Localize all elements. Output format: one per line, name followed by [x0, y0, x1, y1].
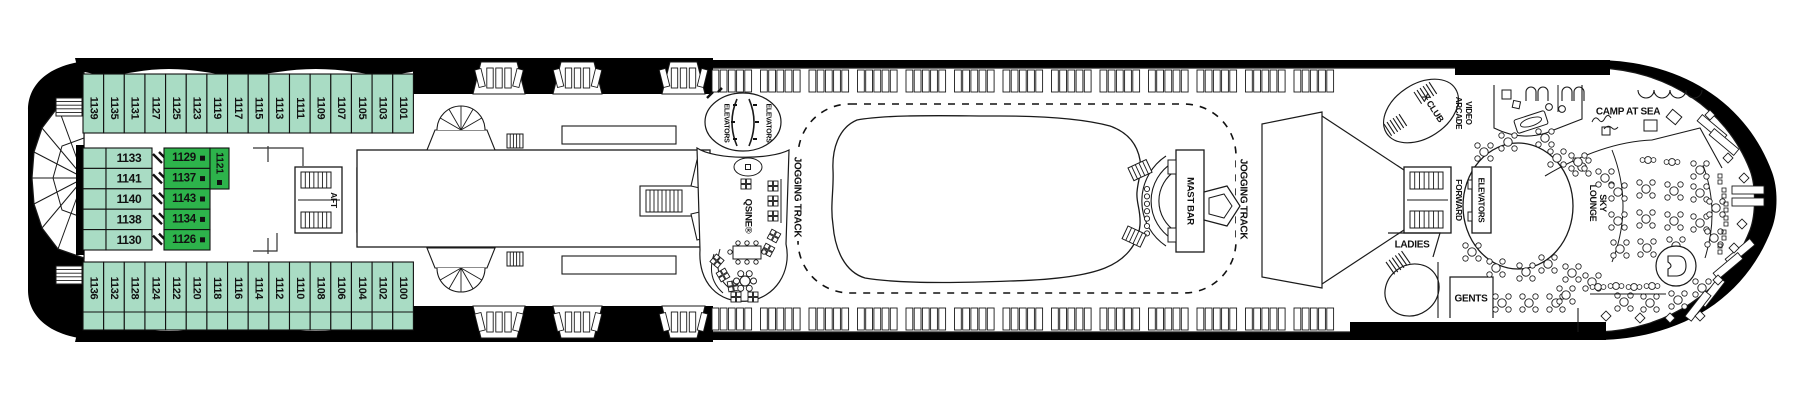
- lounger-icon: [785, 70, 792, 92]
- lounger-icon: [866, 70, 873, 92]
- cabin-number-1138: 1138: [117, 212, 142, 226]
- balcony-1133[interactable]: [83, 148, 106, 168]
- lounger-icon: [914, 308, 921, 330]
- label-elevators-mid-right: ELEVATORS: [765, 104, 772, 144]
- balcony-1130[interactable]: [83, 230, 106, 250]
- lounger-icon: [1149, 70, 1156, 92]
- lounger-icon: [1319, 308, 1326, 330]
- lounger-icon: [939, 70, 946, 92]
- lounger-icon: [574, 312, 580, 332]
- lounger-icon: [496, 68, 502, 88]
- lounger-group: [1052, 308, 1092, 330]
- lounger-icon: [1019, 308, 1026, 330]
- cabin-number-1133: 1133: [117, 151, 142, 165]
- gangway-stairs-icon: [56, 266, 82, 284]
- lounger-group: [1149, 308, 1189, 330]
- cabin-number-1127: 1127: [149, 97, 161, 120]
- cabin-number-1121: 1121: [214, 152, 226, 174]
- label-jogging-track-fwd: JOGGING TRACK: [1238, 159, 1249, 241]
- lounger-icon: [1262, 70, 1269, 92]
- chair-icon: [736, 260, 740, 264]
- lounger-icon: [1197, 70, 1204, 92]
- lounger-icon: [1205, 308, 1212, 330]
- cabin-number-1143: 1143: [172, 193, 196, 205]
- lounger-group: [1100, 70, 1140, 92]
- cabin-marker: [200, 237, 205, 242]
- lounger-icon: [979, 308, 986, 330]
- lounger-icon: [1205, 70, 1212, 92]
- cabin-number-1134: 1134: [172, 213, 197, 225]
- cabin-number-1132: 1132: [108, 277, 120, 300]
- lounger-icon: [955, 308, 962, 330]
- lounger-icon: [1310, 70, 1317, 92]
- lounger-icon: [1181, 308, 1188, 330]
- elevator-door: [1468, 212, 1472, 221]
- lounger-icon: [817, 70, 824, 92]
- lounger-group: [1100, 308, 1140, 330]
- chair-icon: [736, 241, 740, 245]
- label-mast-bar: MAST BAR: [1185, 177, 1196, 225]
- lounger-group: [712, 308, 752, 330]
- lounger-icon: [1294, 70, 1301, 92]
- lounger-icon: [874, 308, 881, 330]
- bar-stool-icon: [1144, 216, 1149, 221]
- lounger-icon: [858, 308, 865, 330]
- lounger-icon: [769, 308, 776, 330]
- lounger-group: [1246, 308, 1286, 330]
- lounger-icon: [809, 308, 816, 330]
- table-icon: [1664, 159, 1680, 166]
- lounger-icon: [487, 68, 493, 88]
- hull-wave-top: [75, 58, 420, 75]
- lounger-icon: [834, 70, 841, 92]
- lounger-icon: [1116, 308, 1123, 330]
- label-ladies: LADIES: [1395, 240, 1431, 251]
- label-forward: FORWARD: [1454, 179, 1464, 221]
- lounger-icon: [761, 70, 768, 92]
- lounger-group: [1003, 308, 1043, 330]
- stairs-icon: [507, 134, 523, 148]
- lounger-icon: [496, 312, 502, 332]
- forward-casing: [1262, 112, 1322, 288]
- cabin-number-1135: 1135: [108, 97, 120, 120]
- lounger-icon: [680, 68, 686, 88]
- lounger-icon: [1262, 308, 1269, 330]
- lounger-icon: [842, 70, 849, 92]
- table-icon: [1626, 284, 1642, 291]
- cabin-number-1107: 1107: [335, 97, 347, 120]
- cabin-number-1117: 1117: [232, 97, 244, 119]
- lounger-icon: [689, 312, 695, 332]
- lounger-icon: [906, 70, 913, 92]
- bar-stool-icon: [1144, 223, 1149, 228]
- lounger-icon: [777, 308, 784, 330]
- cabin-number-1140: 1140: [117, 192, 142, 206]
- lounger-icon: [1165, 308, 1172, 330]
- bar-stool-icon: [1144, 186, 1149, 191]
- stairs-icon: [646, 190, 682, 212]
- lounger-icon: [890, 308, 897, 330]
- lounger-group: [858, 70, 898, 92]
- pool-opening: [832, 116, 1141, 283]
- lounger-icon: [1003, 308, 1010, 330]
- lounger-icon: [1011, 308, 1018, 330]
- lounger-icon: [565, 312, 571, 332]
- balcony-1138[interactable]: [83, 209, 106, 229]
- deck-plan-page: 1139113511311127112511231119111711151113…: [0, 0, 1800, 400]
- lounger-icon: [922, 308, 929, 330]
- label-camp-at-sea: CAMP AT SEA: [1596, 107, 1660, 118]
- host-podium: [734, 158, 762, 176]
- lounger-icon: [1036, 308, 1043, 330]
- lounger-icon: [914, 70, 921, 92]
- lounger-icon: [793, 70, 800, 92]
- label-elevators-mid-left: ELEVATORS: [723, 104, 730, 144]
- lounger-icon: [1068, 308, 1075, 330]
- lounger-icon: [1076, 70, 1083, 92]
- gangway-stairs-icon: [56, 98, 82, 116]
- lounger-icon: [979, 70, 986, 92]
- lounger-icon: [931, 70, 938, 92]
- cabin-row-bottom: 1136113211281124112211201118111611141112…: [83, 262, 413, 330]
- lounger-group: [1294, 308, 1334, 330]
- cabin-number-1104: 1104: [356, 277, 368, 301]
- lounger-icon: [777, 70, 784, 92]
- lounger-icon: [761, 308, 768, 330]
- lounger-icon: [1116, 70, 1123, 92]
- cabin-number-1116: 1116: [232, 277, 244, 299]
- lounger-group: [761, 308, 801, 330]
- dining-table: [733, 246, 761, 259]
- lounger-icon: [1254, 70, 1261, 92]
- lounger-icon: [825, 70, 832, 92]
- lounger-icon: [1060, 308, 1067, 330]
- chair-icon: [728, 250, 732, 254]
- label-qsine: QSINE®: [743, 199, 754, 234]
- lounger-icon: [728, 70, 735, 92]
- lounger-icon: [987, 308, 994, 330]
- lounger-icon: [583, 312, 589, 332]
- lounger-group: [712, 70, 752, 92]
- lounger-icon: [1060, 70, 1067, 92]
- lounger-icon: [712, 70, 719, 92]
- lounger-icon: [1125, 308, 1132, 330]
- lounger-icon: [1197, 308, 1204, 330]
- lounger-icon: [1019, 70, 1026, 92]
- lounger-icon: [922, 70, 929, 92]
- lounger-icon: [1213, 308, 1220, 330]
- chair-icon: [745, 241, 749, 245]
- lounger-icon: [1327, 70, 1334, 92]
- cabin-number-1113: 1113: [273, 97, 285, 119]
- balcony-1141[interactable]: [83, 168, 106, 188]
- chair-icon: [762, 250, 766, 254]
- lounger-group: [809, 308, 849, 330]
- lounger-icon: [963, 70, 970, 92]
- lounger-group: [1149, 70, 1189, 92]
- cabin-number-1122: 1122: [170, 277, 182, 300]
- table-icon: [1590, 284, 1606, 291]
- lounger-icon: [1310, 308, 1317, 330]
- elevator-door: [1468, 180, 1472, 189]
- lounger-icon: [505, 312, 511, 332]
- hull-step-top: [1455, 60, 1610, 75]
- lounger-icon: [1011, 70, 1018, 92]
- cabin-number-1118: 1118: [211, 277, 223, 299]
- sofa-icon: [1732, 198, 1764, 206]
- lounger-well: [473, 306, 525, 338]
- lounger-icon: [680, 312, 686, 332]
- lounger-icon: [1181, 70, 1188, 92]
- cabin-number-1103: 1103: [376, 97, 388, 120]
- lounger-icon: [1108, 308, 1115, 330]
- piano-icon: [1656, 246, 1696, 286]
- cabin-number-1102: 1102: [376, 277, 388, 300]
- table-icon: [1640, 157, 1656, 164]
- lounger-well: [553, 306, 602, 338]
- cabin-number-1119: 1119: [211, 97, 223, 119]
- lounger-group: [1052, 70, 1092, 92]
- bar-step: [1168, 160, 1176, 174]
- bar-step: [1168, 228, 1176, 242]
- cabin-number-1115: 1115: [253, 97, 265, 119]
- label-aft: AFT: [329, 192, 339, 209]
- lounger-icon: [1254, 308, 1261, 330]
- lounger-icon: [809, 70, 816, 92]
- cabin-number-1110: 1110: [294, 277, 306, 299]
- cabin-marker: [200, 156, 205, 161]
- lounger-group: [955, 308, 995, 330]
- cabin-number-1114: 1114: [253, 277, 265, 300]
- lounger-icon: [728, 308, 735, 330]
- lounger-icon: [1246, 70, 1253, 92]
- lounger-icon: [737, 308, 744, 330]
- lounger-group: [1197, 308, 1237, 330]
- lounger-group: [809, 70, 849, 92]
- lounger-icon: [834, 308, 841, 330]
- lounger-icon: [858, 70, 865, 92]
- lounger-well: [473, 62, 525, 94]
- lounger-icon: [1157, 308, 1164, 330]
- lounger-icon: [955, 70, 962, 92]
- cabin-number-1141: 1141: [117, 172, 142, 186]
- lounger-icon: [745, 308, 752, 330]
- lounger-icon: [745, 70, 752, 92]
- lounger-icon: [1222, 70, 1229, 92]
- lounger-icon: [931, 308, 938, 330]
- deck-plan-svg: 1139113511311127112511231119111711151113…: [0, 0, 1800, 400]
- lounger-icon: [785, 308, 792, 330]
- cabin-number-1137: 1137: [172, 173, 196, 185]
- lounger-group: [906, 70, 946, 92]
- lounger-icon: [963, 308, 970, 330]
- cabin-marker: [200, 176, 205, 181]
- lounger-icon: [487, 312, 493, 332]
- cabin-number-1100: 1100: [397, 277, 409, 300]
- lounger-icon: [793, 308, 800, 330]
- cabin-marker: [200, 217, 205, 222]
- stairs-icon: [507, 252, 523, 266]
- lounger-icon: [1222, 308, 1229, 330]
- lounger-icon: [971, 308, 978, 330]
- cabin-number-1120: 1120: [191, 277, 203, 300]
- deck-locker: [562, 126, 676, 144]
- cabin-row-top: 1139113511311127112511231119111711151113…: [83, 74, 413, 133]
- lounger-icon: [505, 68, 511, 88]
- lounger-icon: [671, 312, 677, 332]
- lounger-icon: [1173, 70, 1180, 92]
- chair-icon: [754, 241, 758, 245]
- lounger-icon: [906, 308, 913, 330]
- lounger-icon: [1003, 70, 1010, 92]
- deck-locker: [562, 256, 676, 274]
- bar-stool-icon: [1144, 201, 1149, 206]
- lounger-icon: [1084, 70, 1091, 92]
- cabin-number-1130: 1130: [117, 233, 142, 247]
- lounger-icon: [1302, 70, 1309, 92]
- lounger-icon: [1052, 70, 1059, 92]
- lounger-icon: [1327, 308, 1334, 330]
- lounger-icon: [882, 70, 889, 92]
- chair-icon: [754, 260, 758, 264]
- cabin-number-1128: 1128: [129, 277, 141, 300]
- lounger-icon: [1157, 70, 1164, 92]
- label-jogging-track-aft: JOGGING TRACK: [792, 157, 803, 239]
- lounger-icon: [1230, 308, 1237, 330]
- cabin-marker: [217, 180, 222, 185]
- hull-step-bottom: [1350, 322, 1606, 340]
- lounger-icon: [1028, 308, 1035, 330]
- lounger-icon: [866, 308, 873, 330]
- lounger-icon: [1173, 308, 1180, 330]
- lounger-icon: [1246, 308, 1253, 330]
- sofa-icon: [1732, 186, 1764, 194]
- lounger-group: [858, 308, 898, 330]
- lounger-icon: [1165, 70, 1172, 92]
- cabin-number-1124: 1124: [149, 277, 161, 301]
- lounger-group: [1294, 70, 1334, 92]
- lounger-icon: [1278, 70, 1285, 92]
- lounger-icon: [1294, 308, 1301, 330]
- lounger-icon: [1084, 308, 1091, 330]
- balcony-1140[interactable]: [83, 189, 106, 209]
- cabin-number-1106: 1106: [335, 277, 347, 300]
- bar-stool-icon: [1144, 209, 1149, 214]
- lounger-group: [906, 308, 946, 330]
- lounger-icon: [1270, 70, 1277, 92]
- lounger-icon: [689, 68, 695, 88]
- cabin-number-1111: 1111: [294, 97, 306, 119]
- lounger-icon: [825, 308, 832, 330]
- lounger-icon: [574, 68, 580, 88]
- lounger-icon: [1302, 308, 1309, 330]
- lounger-icon: [583, 68, 589, 88]
- lounger-icon: [1230, 70, 1237, 92]
- lounger-icon: [1270, 308, 1277, 330]
- lounger-icon: [737, 70, 744, 92]
- chair-icon: [745, 260, 749, 264]
- lounger-group: [1003, 70, 1043, 92]
- lounger-icon: [939, 308, 946, 330]
- lounger-icon: [1028, 70, 1035, 92]
- cabin-number-1109: 1109: [314, 97, 326, 120]
- lounger-icon: [874, 70, 881, 92]
- table-icon: [1608, 283, 1624, 290]
- lounger-icon: [1068, 70, 1075, 92]
- lounger-icon: [1149, 308, 1156, 330]
- lounger-icon: [671, 68, 677, 88]
- cabin-number-1131: 1131: [129, 97, 141, 120]
- cabin-number-1139: 1139: [87, 97, 99, 120]
- lounger-icon: [1036, 70, 1043, 92]
- lounger-icon: [842, 308, 849, 330]
- lounger-icon: [817, 308, 824, 330]
- lounger-group: [761, 70, 801, 92]
- lounger-icon: [971, 70, 978, 92]
- lounger-group: [955, 70, 995, 92]
- lounger-icon: [1319, 70, 1326, 92]
- bar-stool-icon: [1144, 194, 1149, 199]
- cabin-number-1125: 1125: [170, 97, 182, 120]
- lounger-icon: [1125, 70, 1132, 92]
- lounger-icon: [1052, 308, 1059, 330]
- lounger-icon: [890, 70, 897, 92]
- table-icon: [1644, 283, 1660, 290]
- lounger-icon: [712, 308, 719, 330]
- lounger-icon: [882, 308, 889, 330]
- cabin-number-1112: 1112: [273, 277, 285, 299]
- lounger-icon: [1213, 70, 1220, 92]
- lounger-icon: [1100, 308, 1107, 330]
- cabin-marker: [200, 197, 205, 202]
- lounger-well: [553, 62, 602, 94]
- lounger-group: [1246, 70, 1286, 92]
- cabin-number-1126: 1126: [172, 234, 196, 246]
- lounger-icon: [987, 70, 994, 92]
- qsine-area: ELEVATORSELEVATORSQSINE®: [697, 88, 789, 302]
- lounger-icon: [1108, 70, 1115, 92]
- lounger-icon: [1076, 308, 1083, 330]
- cabin-number-1136: 1136: [87, 277, 99, 300]
- lounger-icon: [720, 308, 727, 330]
- cabin-number-1108: 1108: [314, 277, 326, 300]
- cabin-number-1123: 1123: [191, 97, 203, 120]
- lounger-icon: [769, 70, 776, 92]
- cabin-number-1101: 1101: [397, 97, 409, 120]
- cabin-number-1129: 1129: [172, 152, 196, 164]
- cabin-number-1105: 1105: [356, 97, 368, 120]
- lounger-icon: [1100, 70, 1107, 92]
- lounger-group: [1197, 70, 1237, 92]
- lounger-icon: [1133, 308, 1140, 330]
- label-elevators-forward: ELEVATORS: [1477, 178, 1486, 224]
- lounger-icon: [1278, 308, 1285, 330]
- lounger-icon: [1133, 70, 1140, 92]
- lounger-icon: [565, 68, 571, 88]
- label-gents: GENTS: [1455, 294, 1489, 305]
